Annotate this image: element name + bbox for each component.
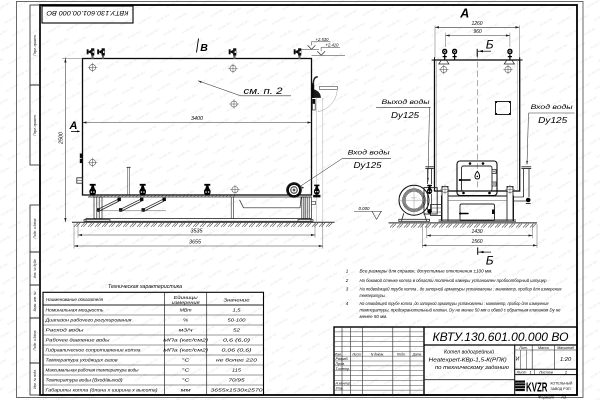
svg-text:Н.контр.: Н.контр. bbox=[336, 382, 351, 386]
svg-text:+2.410: +2.410 bbox=[326, 43, 340, 48]
svg-text:Б: Б bbox=[486, 254, 494, 268]
svg-text:1,5: 1,5 bbox=[233, 308, 242, 313]
svg-text:Все размеры для справок, допус: Все размеры для справок, допустимые откл… bbox=[360, 269, 493, 274]
svg-text:На боковой стенке котла в обла: На боковой стенке котла в области топочн… bbox=[360, 277, 547, 283]
svg-text:Масса: Масса bbox=[538, 346, 549, 350]
svg-text:Подп. и дата: Подп. и дата bbox=[33, 330, 37, 350]
svg-text:КВТУ.130.601.00.000 ВО: КВТУ.130.601.00.000 ВО bbox=[433, 330, 569, 344]
svg-text:Т.контр.: Т.контр. bbox=[336, 367, 351, 371]
svg-text:3535: 3535 bbox=[191, 229, 204, 235]
svg-text:температуры, предохранительный: температуры, предохранительный клапан. D… bbox=[360, 307, 561, 313]
svg-text:мм: мм bbox=[181, 388, 191, 393]
svg-text:Дата: Дата bbox=[412, 352, 422, 356]
svg-text:1: 1 bbox=[346, 269, 349, 274]
svg-text:0,6 (6,0): 0,6 (6,0) bbox=[223, 338, 251, 343]
svg-text:Гидравлическое сопротивление к: Гидравлическое сопротивление котла bbox=[46, 348, 141, 353]
svg-text:Разраб.: Разраб. bbox=[336, 357, 349, 361]
svg-text:И: И bbox=[516, 357, 520, 363]
svg-text:Техническая характеристика: Техническая характеристика bbox=[108, 284, 182, 290]
svg-text:А3: А3 bbox=[560, 395, 567, 400]
svg-text:Наименование показателя: Наименование показателя bbox=[46, 297, 103, 303]
svg-text:50-100: 50-100 bbox=[228, 318, 247, 323]
svg-text:А: А bbox=[69, 120, 78, 132]
svg-text:KVZR: KVZR bbox=[526, 380, 548, 394]
svg-text:4: 4 bbox=[346, 301, 349, 306]
svg-text:Лист: Лист bbox=[516, 371, 527, 375]
svg-text:960: 960 bbox=[473, 29, 482, 35]
svg-text:МВт: МВт bbox=[180, 308, 192, 313]
svg-text:°С: °С bbox=[182, 378, 191, 383]
svg-text:по техническому заданию: по техническому заданию bbox=[435, 365, 510, 371]
svg-text:Инв. № дубл.: Инв. № дубл. bbox=[33, 259, 37, 279]
svg-text:1560: 1560 bbox=[471, 239, 482, 245]
svg-text:Heatexpert-КВр-1,5-К(РПК): Heatexpert-КВр-1,5-К(РПК) bbox=[429, 358, 507, 364]
svg-text:КВТУ.130.601.00.000 ВО: КВТУ.130.601.00.000 ВО bbox=[46, 9, 129, 16]
svg-text:2500: 2500 bbox=[59, 132, 65, 145]
svg-text:0,06 (0,6): 0,06 (0,6) bbox=[222, 348, 253, 353]
svg-text:Выход воды: Выход воды bbox=[382, 98, 430, 106]
svg-text:°С: °С bbox=[182, 358, 191, 363]
svg-text:м3/ч: м3/ч bbox=[179, 328, 194, 333]
svg-text:1: 1 bbox=[529, 371, 531, 375]
svg-text:КОТЕЛЬНЫЙ: КОТЕЛЬНЫЙ bbox=[551, 382, 573, 386]
svg-text:Лист: Лист bbox=[351, 352, 361, 356]
svg-text:Расход воды: Расход воды bbox=[46, 328, 85, 333]
svg-text:Перв. примен.: Перв. примен. bbox=[33, 114, 37, 135]
svg-text:Рабочее давление воды: Рабочее давление воды bbox=[46, 338, 111, 343]
svg-text:1430: 1430 bbox=[471, 229, 482, 235]
svg-text:менее 50 мм.: менее 50 мм. bbox=[360, 314, 388, 319]
svg-text:0.000: 0.000 bbox=[359, 206, 371, 211]
svg-text:Котел водогрейный: Котел водогрейный bbox=[444, 349, 494, 356]
svg-text:см. п. 2: см. п. 2 bbox=[244, 86, 283, 96]
svg-text:N докум.: N докум. bbox=[371, 352, 384, 356]
svg-text:Подп. и дата: Подп. и дата bbox=[33, 218, 37, 238]
svg-text:1260: 1260 bbox=[471, 21, 482, 27]
svg-text:Максимальная рабочая температу: Максимальная рабочая температура воды bbox=[46, 368, 140, 373]
svg-text:Dy125: Dy125 bbox=[354, 160, 382, 170]
svg-text:Масштаб: Масштаб bbox=[557, 346, 575, 350]
svg-text:1:20: 1:20 bbox=[560, 357, 572, 363]
svg-text:Вход воды: Вход воды bbox=[348, 148, 390, 156]
svg-text:измерения: измерения bbox=[172, 300, 201, 305]
svg-text:70/95: 70/95 bbox=[229, 378, 246, 383]
svg-text:Пров.: Пров. bbox=[336, 362, 345, 366]
svg-text:52: 52 bbox=[233, 328, 241, 333]
svg-text:Взам. инв. №: Взам. инв. № bbox=[33, 291, 37, 311]
svg-text:Dy125: Dy125 bbox=[391, 110, 419, 120]
svg-text:МПа (кгс/см2): МПа (кгс/см2) bbox=[163, 348, 209, 353]
svg-text:2: 2 bbox=[345, 278, 349, 283]
svg-text:%: % bbox=[183, 318, 188, 323]
svg-text:не более 220: не более 220 bbox=[216, 358, 258, 363]
svg-text:ЗАВОД РЭП: ЗАВОД РЭП bbox=[551, 387, 572, 391]
svg-text:Лит.: Лит. bbox=[518, 346, 527, 350]
svg-text:Значение: Значение bbox=[224, 298, 251, 303]
svg-text:Б: Б bbox=[486, 38, 494, 52]
svg-text:115: 115 bbox=[232, 368, 242, 373]
svg-text:В: В bbox=[200, 42, 208, 54]
svg-text:Температура уходящих газов: Температура уходящих газов bbox=[46, 358, 119, 363]
svg-text:°С: °С bbox=[182, 368, 191, 373]
svg-text:Утв.: Утв. bbox=[336, 386, 344, 390]
svg-text:Номинальная мощность: Номинальная мощность bbox=[46, 308, 105, 313]
svg-text:Листов: Листов bbox=[538, 371, 553, 375]
svg-text:Вход воды: Вход воды bbox=[531, 103, 573, 111]
svg-text:КВЗР: КВЗР bbox=[411, 197, 417, 199]
svg-text:На отводящей трубе котла ,до з: На отводящей трубе котла ,до запорной ар… bbox=[360, 300, 549, 306]
svg-text:Изм.: Изм. bbox=[335, 352, 342, 356]
svg-text:температуры.: температуры. bbox=[360, 293, 386, 298]
svg-text:Габариты котла (длина х ширина: Габариты котла (длина х ширина х высота) bbox=[46, 388, 159, 393]
svg-text:Dy125: Dy125 bbox=[538, 115, 567, 125]
svg-text:3: 3 bbox=[346, 287, 349, 292]
svg-text:МПа (кгс/см2): МПа (кгс/см2) bbox=[163, 338, 209, 343]
svg-text:+2.530: +2.530 bbox=[316, 37, 330, 42]
svg-text:3655: 3655 bbox=[189, 240, 202, 246]
svg-text:На подводящей трубе котла ,: На подводящей трубе котла , до запорной … bbox=[360, 286, 562, 292]
svg-text:Подп.: Подп. bbox=[397, 352, 406, 356]
svg-text:Инв. № подл.: Инв. № подл. bbox=[33, 369, 37, 389]
svg-text:Формат: Формат bbox=[538, 395, 555, 400]
svg-text:Диапазон рабочего регулировани: Диапазон рабочего регулирования bbox=[44, 318, 132, 323]
svg-text:3655х1530х2570: 3655х1530х2570 bbox=[211, 388, 264, 393]
svg-text:Перв. примен.: Перв. примен. bbox=[33, 34, 37, 55]
svg-text:3400: 3400 bbox=[191, 116, 203, 122]
svg-text:А: А bbox=[459, 7, 469, 21]
svg-text:Температура воды (Вход/выход): Температура воды (Вход/выход) bbox=[46, 378, 123, 383]
